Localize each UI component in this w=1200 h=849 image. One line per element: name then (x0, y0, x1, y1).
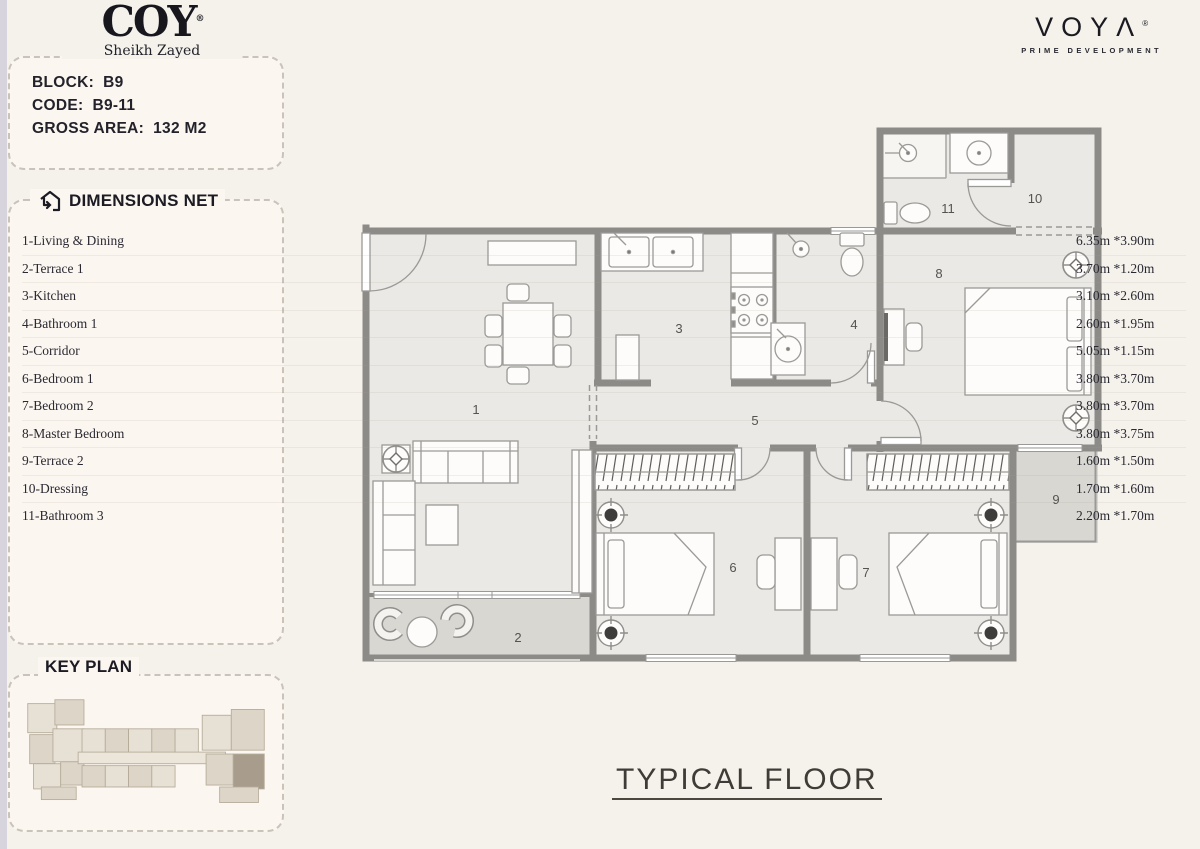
dimensions-net-title: DIMENSIONS NET (30, 189, 225, 213)
dimension-row: 11-Bathroom 32.20m *1.70m (22, 503, 1186, 530)
coy-logo: COY® Sheikh Zayed (62, 0, 242, 59)
room-name: 11-Bathroom 3 (22, 508, 1076, 524)
key-plan-drawing (16, 692, 276, 818)
unit-info-code: CODE:B9-11 (32, 97, 282, 115)
room-size: 3.80m *3.75m (1076, 426, 1186, 442)
room-size: 3.80m *3.70m (1076, 371, 1186, 387)
room-label-10: 10 (1028, 191, 1042, 206)
room-size: 2.20m *1.70m (1076, 508, 1186, 524)
room-size: 5.05m *1.15m (1076, 343, 1186, 359)
room-label-11: 11 (941, 201, 955, 216)
room-label-2: 2 (514, 630, 521, 645)
coy-logo-text: COY® (68, 2, 236, 42)
room-name: 9-Terrace 2 (22, 453, 1076, 469)
dimension-row: 5-Corridor5.05m *1.15m (22, 338, 1186, 366)
room-name: 2-Terrace 1 (22, 261, 1076, 277)
room-size: 3.70m *1.20m (1076, 261, 1186, 277)
voya-logo-subtitle: PRIME DEVELOPMENT (1021, 46, 1162, 55)
terrace-1-floor (364, 595, 593, 658)
room-name: 3-Kitchen (22, 288, 1076, 304)
dimension-row: 9-Terrace 21.60m *1.50m (22, 448, 1186, 476)
room-name: 5-Corridor (22, 343, 1076, 359)
room-size: 1.60m *1.50m (1076, 453, 1186, 469)
voya-logo: VOYΛ® PRIME DEVELOPMENT (1021, 12, 1162, 55)
room-label-6: 6 (729, 560, 736, 575)
dimension-row: 8-Master Bedroom3.80m *3.75m (22, 421, 1186, 449)
room-size: 3.10m *2.60m (1076, 288, 1186, 304)
house-arrows-icon (37, 189, 63, 213)
floor-plan-sheet: { "brand": { "coy": {"name": "COY", "reg… (0, 0, 1200, 849)
room-name: 10-Dressing (22, 481, 1076, 497)
room-size: 6.35m *3.90m (1076, 233, 1186, 249)
room-name: 4-Bathroom 1 (22, 316, 1076, 332)
sheet-caption: TYPICAL FLOOR (612, 763, 882, 800)
dimension-row: 3-Kitchen3.10m *2.60m (22, 283, 1186, 311)
dimensions-table: 1-Living & Dining6.35m *3.90m2-Terrace 1… (22, 228, 1186, 530)
registered-mark-icon: ® (1142, 19, 1148, 28)
dimension-row: 4-Bathroom 12.60m *1.95m (22, 311, 1186, 339)
room-size: 2.60m *1.95m (1076, 316, 1186, 332)
room-size: 1.70m *1.60m (1076, 481, 1186, 497)
unit-info-block: BLOCK:B9 (32, 74, 282, 92)
room-name: 7-Bedroom 2 (22, 398, 1076, 414)
room-name: 6-Bedroom 1 (22, 371, 1076, 387)
dimension-row: 10-Dressing1.70m *1.60m (22, 476, 1186, 504)
room-name: 1-Living & Dining (22, 233, 1076, 249)
voya-logo-text: VOYΛ® (1021, 12, 1162, 43)
room-size: 3.80m *3.70m (1076, 398, 1186, 414)
unit-info-card: BLOCK:B9 CODE:B9-11 GROSS AREA:132 M2 (8, 56, 284, 170)
coy-logo-subtitle: Sheikh Zayed (68, 43, 236, 59)
dimension-row: 2-Terrace 13.70m *1.20m (22, 256, 1186, 284)
dimension-row: 7-Bedroom 23.80m *3.70m (22, 393, 1186, 421)
key-plan-title: KEY PLAN (38, 657, 139, 677)
dimension-row: 6-Bedroom 13.80m *3.70m (22, 366, 1186, 394)
dimension-row: 1-Living & Dining6.35m *3.90m (22, 228, 1186, 256)
room-label-7: 7 (862, 565, 869, 580)
room-name: 8-Master Bedroom (22, 426, 1076, 442)
page-edge-strip (0, 0, 7, 849)
registered-mark-icon: ® (196, 14, 203, 24)
unit-info-gross-area: GROSS AREA:132 M2 (32, 120, 282, 138)
